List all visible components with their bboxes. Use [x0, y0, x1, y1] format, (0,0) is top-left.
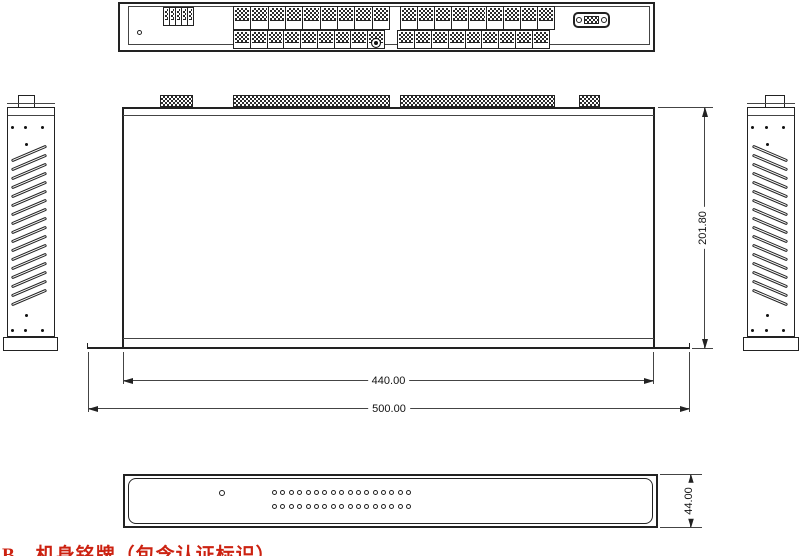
dimension-440-label: 440.00 — [368, 375, 410, 387]
dim-arrow-icon — [680, 406, 690, 412]
side-left-screw-dot — [11, 329, 14, 332]
side-right-screw-dot — [766, 314, 769, 317]
power-terminal-block — [163, 7, 194, 26]
ext-line-depth-top — [660, 474, 702, 475]
side-left-screw-dot — [24, 126, 27, 129]
dimension-500: 500.00 — [88, 408, 690, 409]
dimension-height-label: 201.80 — [697, 207, 709, 249]
side-left-step-line — [7, 103, 55, 104]
flange-right-tick — [689, 343, 690, 348]
side-right-screw-dot — [765, 329, 768, 332]
connector-footprint-hatch-3 — [400, 95, 555, 107]
chassis-plan-bottom-inner-line — [123, 338, 654, 339]
side-right-inner-line — [748, 115, 794, 116]
side-left-screw-dot — [24, 329, 27, 332]
side-right-screw-dot — [751, 329, 754, 332]
dimension-depth-label: 44.00 — [683, 483, 695, 519]
vent-slats-right — [750, 152, 790, 305]
terminal-block-row-1-left — [233, 6, 390, 30]
side-left-foot-plate — [3, 337, 58, 351]
ext-line-500-left — [88, 352, 89, 412]
ext-line-depth-bottom — [660, 527, 702, 528]
rear-mount-hole-icon — [137, 30, 142, 35]
side-left-screw-dot — [25, 314, 28, 317]
side-right-screw-dot — [766, 143, 769, 146]
side-right-screw-dot — [765, 126, 768, 129]
db9-serial-port-icon — [573, 12, 610, 28]
side-left-screw-dot — [41, 329, 44, 332]
side-right-screw-dot — [751, 126, 754, 129]
db9-screw-right-icon — [601, 17, 607, 23]
flange-left-tick — [87, 343, 88, 348]
side-left-screw-dot — [11, 126, 14, 129]
side-left-screw-dot — [25, 143, 28, 146]
ext-line-500-right — [689, 352, 690, 412]
db9-screw-left-icon — [576, 17, 582, 23]
dimension-height: 201.80 — [704, 107, 705, 349]
front-led-holes-row-2 — [272, 504, 411, 509]
front-power-led-hole — [219, 490, 225, 496]
dim-arrow-icon — [688, 518, 694, 528]
front-panel-inner-line — [128, 478, 653, 524]
dimension-depth: 44.00 — [690, 474, 691, 528]
chassis-plan-outline — [122, 107, 655, 349]
caption-note: B、机身铭牌（包含认证标识） — [2, 540, 276, 556]
terminal-block-row-1-right — [400, 6, 555, 30]
engineering-drawing: 440.00 500.00 201.80 — [0, 0, 800, 556]
dimension-440: 440.00 — [123, 380, 654, 381]
dimension-500-label: 500.00 — [368, 403, 410, 415]
side-left-screw-dot — [41, 126, 44, 129]
dim-arrow-icon — [702, 339, 708, 349]
rear-center-screw-icon — [371, 38, 381, 48]
terminal-block-row-2-left — [233, 30, 385, 49]
db9-pins-icon — [584, 16, 599, 24]
mounting-flange-line — [87, 347, 690, 349]
vent-slats-left — [9, 152, 49, 305]
side-right-step-line — [747, 103, 795, 104]
connector-footprint-hatch-4 — [579, 95, 600, 107]
side-right-screw-dot — [782, 126, 785, 129]
dim-arrow-icon — [88, 406, 98, 412]
side-right-screw-dot — [782, 329, 785, 332]
connector-footprint-hatch-2 — [233, 95, 390, 107]
dim-arrow-icon — [702, 107, 708, 117]
side-right-foot-plate — [743, 337, 799, 351]
terminal-block-row-2-right — [397, 30, 550, 49]
chassis-plan-top-inner-line — [123, 115, 654, 116]
dim-arrow-icon — [123, 378, 133, 384]
connector-footprint-hatch-1 — [160, 95, 193, 107]
side-left-inner-line — [8, 115, 54, 116]
front-led-holes-row-1 — [272, 490, 411, 495]
dim-arrow-icon — [644, 378, 654, 384]
